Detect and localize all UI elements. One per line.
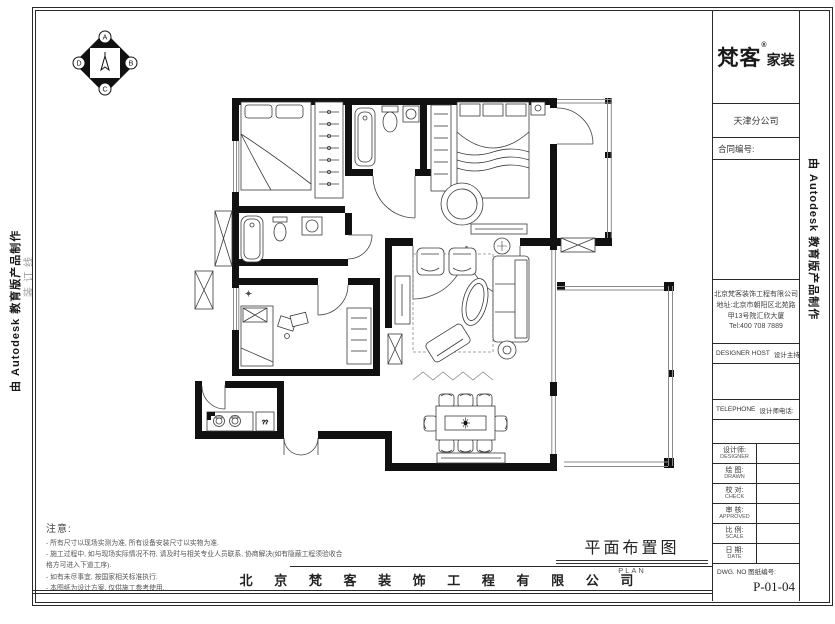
row-scale: 比 例:SCALE [713, 524, 799, 544]
contract-number-label: 合同编号: [713, 138, 799, 160]
row-check: 校 对:CHECK [713, 484, 799, 504]
drawn-value [757, 464, 799, 483]
master-bedroom-furniture [431, 102, 595, 252]
plan-title-cn: 平面布置图 [556, 534, 708, 564]
row-designer: 设计师:DESIGNER [713, 444, 799, 464]
living-room-furniture [388, 238, 529, 380]
notes-title: 注意: [46, 520, 346, 535]
study-furniture [241, 291, 371, 367]
brand-name: 梵客 [717, 47, 761, 70]
branch-cell: 天津分公司 [713, 104, 799, 138]
company-info-cell: 北京梵客装饰工程有限公司 地址:北京市朝阳区北苑路 甲13号院汇欣大厦 Tel:… [713, 280, 799, 344]
footer-band-line-bottom-1 [33, 590, 712, 591]
date-value [757, 544, 799, 563]
drawn-label-en: DRAWN [724, 474, 745, 480]
company-phone: Tel:400 708 7889 [729, 322, 783, 333]
row-approved: 审 核:APPROVED [713, 504, 799, 524]
brand-suffix: 家装 [767, 52, 795, 68]
telephone-cn: 设计师电话: [759, 405, 793, 415]
date-label-en: DATE [727, 554, 741, 560]
company-name: 北京梵客装饰工程有限公司 [714, 290, 798, 301]
scale-label-en: SCALE [725, 534, 743, 540]
scale-label-cn: 比 例: [726, 527, 744, 535]
telephone-en: TELEPHONE [716, 406, 755, 413]
dwg-label-cn: 图纸编号: [748, 569, 776, 576]
compass-letter-a: A [103, 35, 108, 42]
bath1-fixtures [355, 106, 419, 166]
date-label-cn: 日 期: [726, 547, 744, 555]
footer-band-line-top [290, 566, 712, 567]
dining-furniture [424, 394, 507, 463]
designer-host-row: DESIGNER HOST 设计主持人: [713, 344, 799, 364]
dwg-label-en: DWG. NO [717, 569, 746, 576]
shaft-boxes [195, 211, 232, 309]
kitchen-box-label: ?? [262, 420, 268, 426]
brand-logo: 梵客®家装 [713, 11, 799, 104]
blank-cell-2 [713, 364, 799, 400]
designer-label-cn: 设计师: [723, 447, 746, 455]
designer-label-en: DESIGNER [720, 454, 749, 460]
company-address-1: 地址:北京市朝阳区北苑路 [717, 301, 796, 312]
designer-host-cn: 设计主持人: [774, 349, 799, 359]
compass-letter-d: D [76, 61, 81, 68]
check-value [757, 484, 799, 503]
row-date: 日 期:DATE [713, 544, 799, 564]
check-label-cn: 校 对: [726, 487, 744, 495]
footer-band-line-bottom-2 [33, 593, 712, 594]
telephone-row: TELEPHONE 设计师电话: [713, 400, 799, 420]
compass-letter-c: C [102, 87, 107, 94]
blank-cell-3 [713, 420, 799, 444]
row-drawn: 绘 图:DRAWN [713, 464, 799, 484]
drawing-sheet: 由 Autodesk 教育版产品制作 装订线 由 Autodesk 教育版产品制… [0, 0, 835, 624]
compass-letter-b: B [129, 61, 134, 68]
floor-plan: ?? [175, 86, 685, 542]
kitchen-fixtures: ?? [207, 412, 274, 431]
blank-cell-1 [713, 160, 799, 280]
bedroom1-furniture [241, 102, 343, 198]
drawing-number-cell: DWG. NO 图纸编号: P-01-04 [713, 564, 799, 601]
title-block: 梵客®家装 天津分公司 合同编号: 北京梵客装饰工程有限公司 地址:北京市朝阳区… [712, 11, 800, 601]
approved-label-cn: 审 核: [726, 507, 744, 515]
drawn-label-cn: 绘 图: [726, 467, 744, 475]
note-item-2: - 施工过程中, 如与现场实际情况不符, 请及时与相关专业人员联系, 协商解决(… [46, 549, 346, 571]
check-label-en: CHECK [725, 494, 744, 500]
plan-title-block: 平面布置图 PLAN [556, 534, 708, 575]
designer-value [757, 444, 799, 463]
bath2-fixtures [241, 216, 322, 262]
approved-label-en: APPROVED [719, 514, 750, 520]
designer-host-en: DESIGNER HOST [716, 350, 770, 357]
scale-value [757, 524, 799, 543]
registered-mark: ® [761, 42, 766, 49]
drawing-number: P-01-04 [717, 579, 795, 595]
company-address-2: 甲13号院汇欣大厦 [728, 312, 785, 323]
approved-value [757, 504, 799, 523]
footer-company-name: 北 京 梵 客 装 饰 工 程 有 限 公 司 [170, 570, 712, 589]
note-item-1: - 所有尺寸以现场实测为准, 所有设备安装尺寸以实物为准. [46, 538, 346, 549]
north-compass-icon: A B C D [72, 30, 138, 96]
